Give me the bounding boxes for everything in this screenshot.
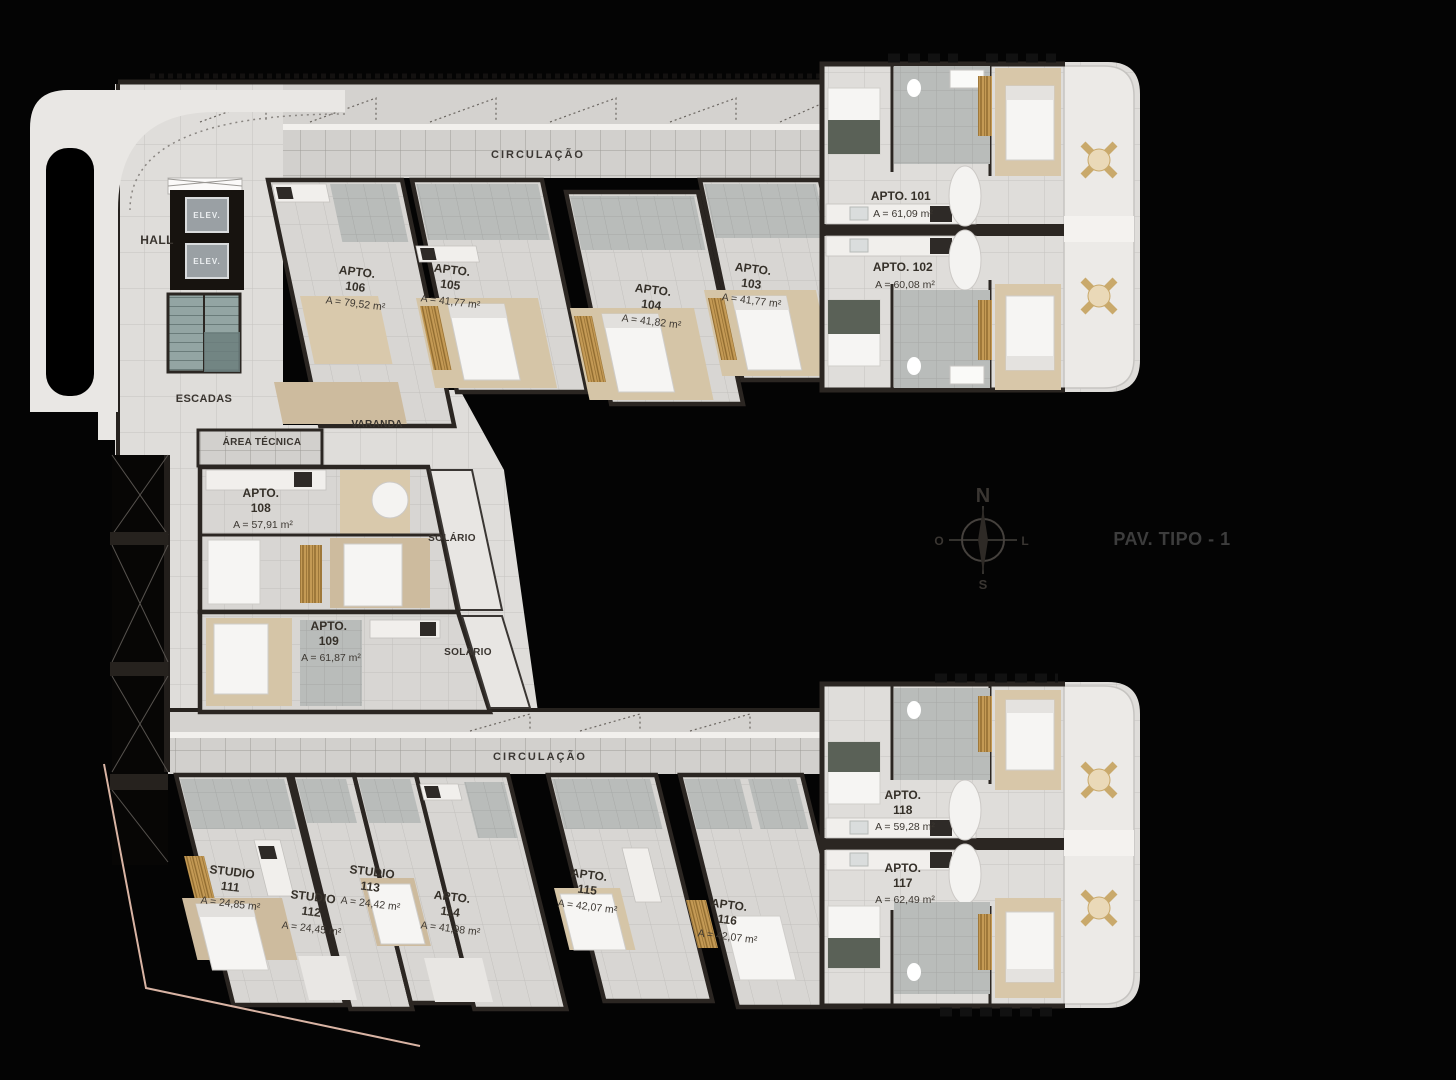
- shaft-stub-1: [110, 532, 168, 545]
- unit-108-table: [372, 482, 408, 518]
- block-101-102: [822, 58, 1140, 392]
- dining-table-101: [949, 166, 981, 226]
- bed-118b-blanket: [828, 742, 880, 772]
- bed-101b-blanket: [828, 120, 880, 154]
- shaft-stub-3: [110, 774, 168, 790]
- toilet-102: [907, 357, 921, 375]
- tub-102: [950, 366, 984, 384]
- cooktop-101: [930, 206, 952, 222]
- dining-table-118: [949, 780, 981, 840]
- bed-102b-blanket: [828, 300, 880, 334]
- closet-118: [978, 696, 992, 752]
- compass-needle: [978, 508, 988, 572]
- circulacao-top-label: CIRCULAÇÃO: [491, 148, 585, 161]
- balcony-table-top-2: [1083, 280, 1115, 312]
- bed-102-pillows: [1006, 356, 1054, 370]
- dining-table-102: [949, 230, 981, 290]
- sink-102: [850, 239, 868, 252]
- dining-table-117: [949, 844, 981, 904]
- closet-101: [978, 76, 992, 136]
- balcony-divider-top: [1064, 216, 1134, 242]
- solario-2-label: SOLÁRIO: [444, 645, 492, 658]
- balcony-table-top-1: [1083, 144, 1115, 176]
- shaft-void: [112, 455, 168, 865]
- sink-101: [850, 207, 868, 220]
- closet-102: [978, 300, 992, 360]
- compass-west: O: [934, 534, 943, 548]
- cooktop-117: [930, 852, 952, 868]
- balcony-table-bottom-2: [1083, 892, 1115, 924]
- unit-109-cooktop: [420, 622, 436, 636]
- cooktop-102: [930, 238, 952, 254]
- elevator-1-label: ELEV.: [193, 211, 220, 220]
- bath-117: [894, 902, 990, 994]
- bed-118-pillows: [1006, 700, 1054, 713]
- bottom-row-units: [151, 775, 860, 1009]
- unit-108-cooktop: [294, 472, 312, 487]
- compass-rose-icon: N S O L: [934, 485, 1028, 592]
- sink-118: [850, 821, 868, 834]
- varanda-label: VARANDA: [351, 419, 402, 430]
- toilet-101: [907, 79, 921, 97]
- unit-108-closet: [300, 545, 322, 603]
- solario-1-label: SOLÁRIO: [428, 531, 476, 544]
- block-117-118: [822, 678, 1140, 1012]
- balcony-divider-bottom: [1064, 830, 1134, 856]
- compass-east: L: [1021, 534, 1028, 548]
- stairs-lower-flight: [204, 332, 240, 372]
- bath-118: [894, 688, 990, 780]
- bed-117-pillows: [1006, 969, 1054, 982]
- bed-117b-blanket: [828, 938, 880, 968]
- shaft-wall: [164, 455, 170, 772]
- party-wall-bottom: [824, 838, 1064, 850]
- floor-plan-svg: ELEV. ELEV. ESCADAS HALL: [0, 0, 1456, 1080]
- area-tecnica-label: ÁREA TÉCNICA: [223, 435, 302, 448]
- closet-117: [978, 914, 992, 970]
- unit-109-bed: [214, 624, 268, 694]
- elevator-2-label: ELEV.: [193, 257, 220, 266]
- bed-101-pillows: [1006, 86, 1054, 100]
- area-tecnica-room: [198, 430, 322, 466]
- bottom-white-band: [168, 732, 845, 738]
- floor-plan-stage: ELEV. ELEV. ESCADAS HALL: [0, 0, 1456, 1080]
- compass-north: N: [976, 485, 990, 507]
- escadas-label: ESCADAS: [176, 393, 233, 405]
- balcony-table-bottom-1: [1083, 764, 1115, 796]
- unit-108-bed-2: [344, 544, 402, 606]
- hall-label: HALL: [140, 233, 174, 247]
- west-balcony-strip: [98, 200, 116, 440]
- shaft-stub-2: [110, 662, 168, 676]
- toilet-117: [907, 963, 921, 981]
- page-title: PAV. TIPO - 1: [1113, 529, 1230, 549]
- party-wall-top: [824, 224, 1064, 236]
- circulacao-bottom-label: CIRCULAÇÃO: [493, 750, 587, 763]
- sink-117: [850, 853, 868, 866]
- toilet-118: [907, 701, 921, 719]
- ribbon-hole: [46, 148, 94, 396]
- left-strip-floor: [166, 472, 200, 712]
- compass-south: S: [979, 577, 988, 592]
- unit-108-bed-1: [208, 540, 260, 604]
